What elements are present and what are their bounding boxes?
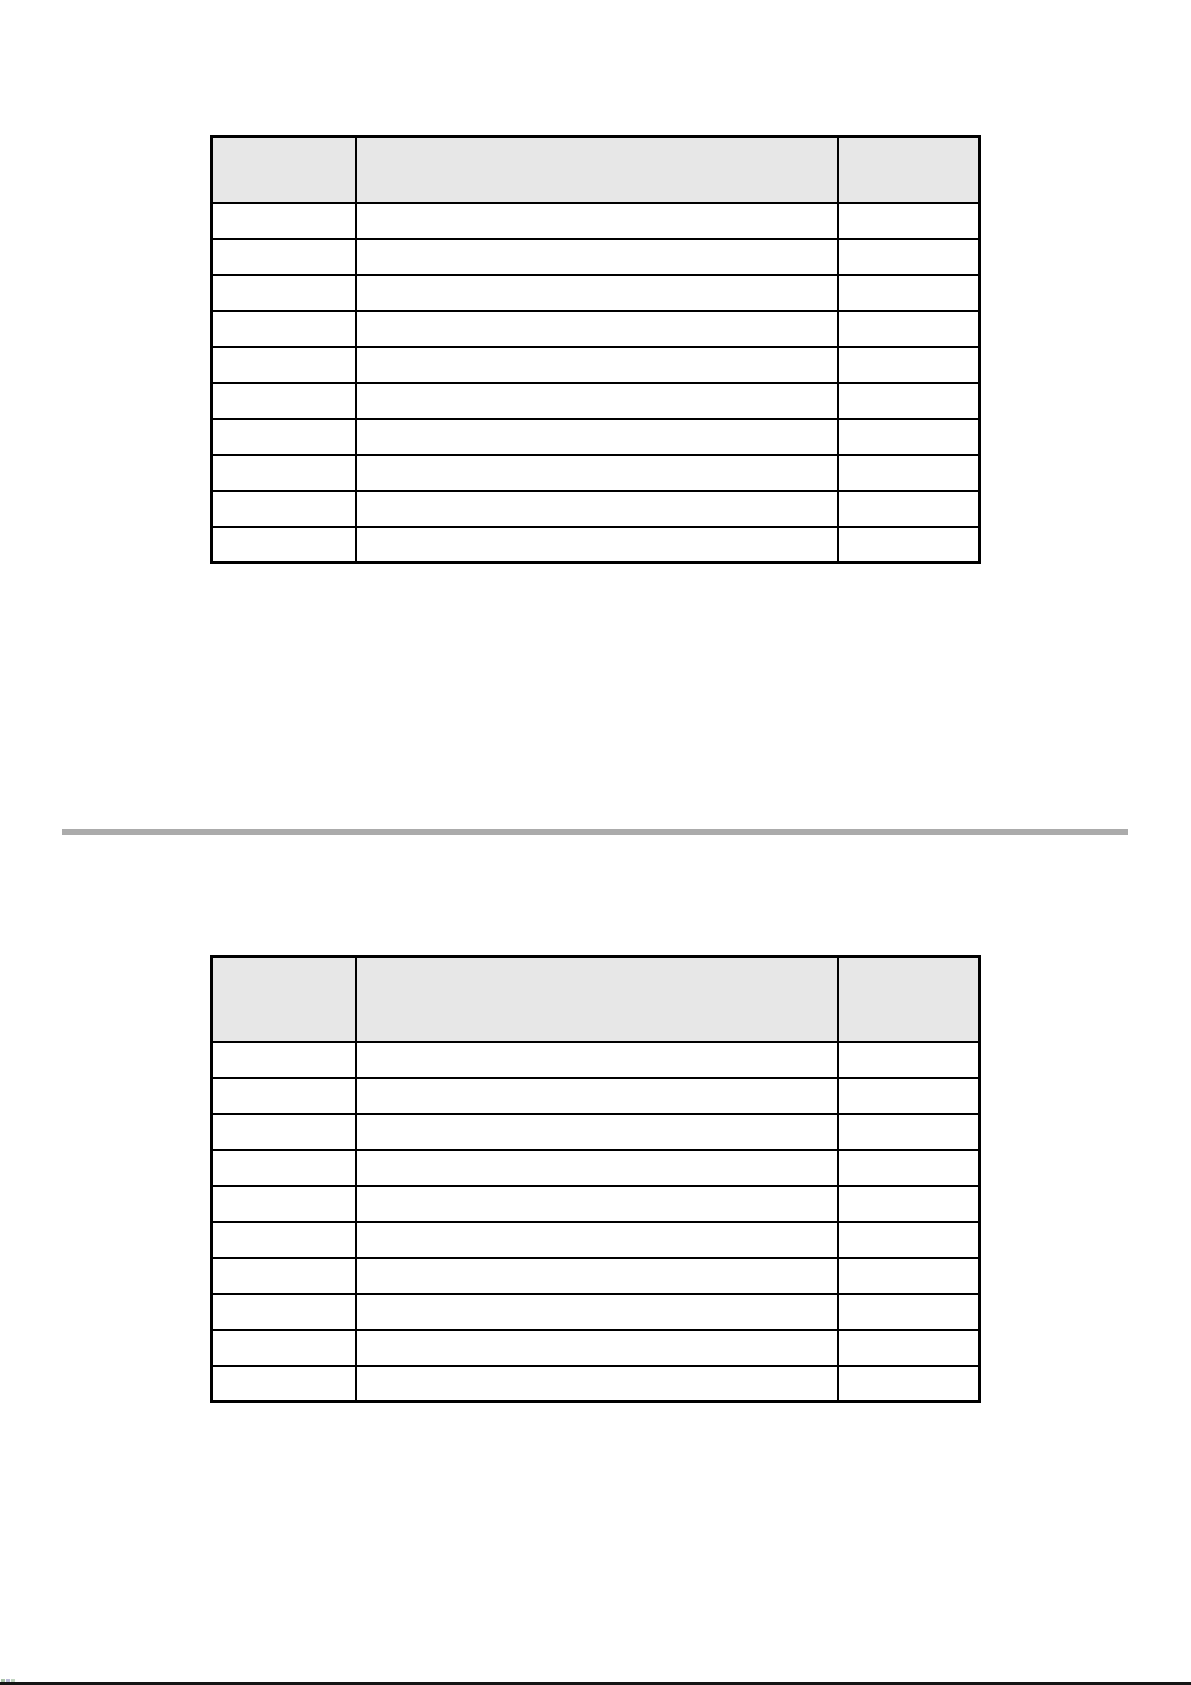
table-cell [212, 491, 356, 527]
table-cell [838, 455, 980, 491]
table-cell [212, 347, 356, 383]
table-row [212, 455, 980, 491]
table-cell [212, 1078, 356, 1114]
table-row [212, 275, 980, 311]
table-cell [838, 419, 980, 455]
table-cell [212, 203, 356, 239]
header-cell [356, 957, 838, 1042]
table-cell [356, 275, 838, 311]
table-row [212, 1042, 980, 1078]
table-cell [212, 1222, 356, 1258]
table-cell [212, 1114, 356, 1150]
table-cell [356, 455, 838, 491]
table-cell [838, 203, 980, 239]
table-cell [212, 1330, 356, 1366]
table-cell [838, 1294, 980, 1330]
table-cell [356, 311, 838, 347]
table-row [212, 1150, 980, 1186]
table-cell [212, 311, 356, 347]
table-cell [212, 1186, 356, 1222]
table-row [212, 1366, 980, 1402]
table-cell [212, 419, 356, 455]
table-cell [838, 527, 980, 563]
table-row [212, 1186, 980, 1222]
table-row [212, 1294, 980, 1330]
section-divider-rule [62, 829, 1128, 835]
table-cell [356, 1042, 838, 1078]
table-cell [356, 203, 838, 239]
table-cell [838, 347, 980, 383]
table-cell [356, 1294, 838, 1330]
table-cell [838, 239, 980, 275]
table-cell [838, 1150, 980, 1186]
table-cell [838, 311, 980, 347]
table-row [212, 491, 980, 527]
table-cell [838, 1114, 980, 1150]
header-cell [212, 957, 356, 1042]
table-cell [356, 1222, 838, 1258]
table-cell [838, 1222, 980, 1258]
table-header-row [212, 957, 980, 1042]
table-cell [838, 1330, 980, 1366]
table-row [212, 1222, 980, 1258]
table-cell [356, 383, 838, 419]
table-cell [356, 1186, 838, 1222]
table-cell [212, 1042, 356, 1078]
table-row [212, 1114, 980, 1150]
table-cell [356, 527, 838, 563]
header-cell [838, 137, 980, 203]
table-row [212, 311, 980, 347]
table-cell [212, 1366, 356, 1402]
table-cell [356, 1330, 838, 1366]
table-cell [356, 1366, 838, 1402]
table-row [212, 383, 980, 419]
table-row [212, 347, 980, 383]
table-cell [838, 491, 980, 527]
table-row [212, 527, 980, 563]
table-cell [212, 455, 356, 491]
table-cell [212, 1294, 356, 1330]
table-cell [838, 1258, 980, 1294]
table-cell [838, 1042, 980, 1078]
table-cell [356, 491, 838, 527]
table-cell [838, 1366, 980, 1402]
table-row [212, 239, 980, 275]
header-cell [356, 137, 838, 203]
table-cell [356, 1150, 838, 1186]
header-cell [838, 957, 980, 1042]
header-cell [212, 137, 356, 203]
table-cell [356, 1258, 838, 1294]
table-row [212, 203, 980, 239]
table-cell [356, 347, 838, 383]
table-row [212, 1258, 980, 1294]
lower-empty-table [210, 955, 981, 1403]
table-cell [212, 1258, 356, 1294]
table-cell [212, 239, 356, 275]
table-header-row [212, 137, 980, 203]
table-row [212, 1330, 980, 1366]
table-cell [212, 275, 356, 311]
table-cell [356, 239, 838, 275]
table-row [212, 419, 980, 455]
table-cell [356, 1114, 838, 1150]
table-row [212, 1078, 980, 1114]
table-cell [212, 383, 356, 419]
table-cell [212, 1150, 356, 1186]
table-cell [838, 1078, 980, 1114]
upper-empty-table [210, 135, 981, 564]
table-cell [356, 419, 838, 455]
table-cell [212, 527, 356, 563]
table-cell [838, 275, 980, 311]
table-cell [838, 1186, 980, 1222]
document-page [0, 0, 1191, 1685]
table-cell [838, 383, 980, 419]
table-cell [356, 1078, 838, 1114]
